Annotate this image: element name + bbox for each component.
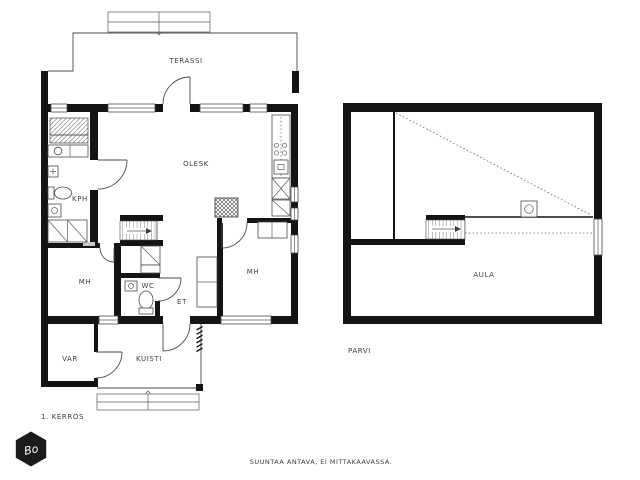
staircase bbox=[120, 221, 160, 273]
terrace-outline bbox=[48, 33, 297, 71]
bathroom-fixtures bbox=[48, 118, 88, 242]
threshold bbox=[83, 242, 95, 246]
window bbox=[51, 104, 67, 112]
et-wardrobe bbox=[197, 257, 217, 307]
window bbox=[594, 219, 602, 255]
room-label-terassi: TERASSI bbox=[168, 57, 202, 65]
kitchen bbox=[272, 115, 290, 216]
toilet-tank bbox=[139, 308, 153, 314]
toilet-tank bbox=[48, 187, 54, 199]
room-label-et: ET bbox=[177, 298, 187, 306]
room-label-mh-right: MH bbox=[247, 268, 260, 276]
logo: Bo bbox=[16, 432, 46, 467]
loft-plan: AULA PARVI bbox=[343, 103, 602, 355]
window bbox=[108, 104, 155, 112]
sink bbox=[125, 281, 137, 291]
window bbox=[200, 104, 243, 112]
walls bbox=[343, 103, 602, 324]
oven bbox=[274, 160, 288, 174]
room-label-kph: KPH bbox=[72, 195, 88, 203]
window bbox=[99, 316, 118, 324]
chimney bbox=[521, 201, 537, 217]
void-dashed-line bbox=[396, 113, 591, 215]
doors bbox=[96, 77, 247, 378]
kph-door bbox=[98, 160, 127, 189]
terrace-door bbox=[163, 77, 190, 104]
porch-steps bbox=[97, 391, 199, 410]
room-label-olesk: OLESK bbox=[183, 160, 209, 168]
window bbox=[291, 208, 298, 220]
window bbox=[221, 316, 271, 324]
floor-label-first: 1. KERROS bbox=[41, 413, 84, 421]
toilet bbox=[55, 187, 72, 199]
mh-right-door bbox=[222, 223, 247, 248]
appliance-block bbox=[50, 118, 88, 135]
room-label-var: VAR bbox=[62, 355, 78, 363]
mh-right-wardrobe bbox=[258, 222, 287, 238]
terrace-steps bbox=[108, 12, 210, 35]
mh-left-door bbox=[100, 248, 114, 262]
inner-partition bbox=[393, 112, 395, 240]
sink bbox=[48, 204, 61, 217]
first-floor-plan: TERASSI OLESK KPH MH WC ET MH KUISTI VAR… bbox=[41, 12, 299, 421]
fireplace bbox=[215, 198, 238, 217]
porch-post bbox=[196, 384, 203, 391]
window bbox=[291, 187, 298, 202]
kuisti-door bbox=[163, 324, 190, 351]
room-label-aula: AULA bbox=[473, 271, 494, 279]
loft-staircase bbox=[426, 215, 465, 239]
railing-zigzag bbox=[197, 327, 203, 352]
floorplan-drawing: TERASSI OLESK KPH MH WC ET MH KUISTI VAR… bbox=[0, 0, 640, 480]
var-door bbox=[96, 352, 122, 378]
floor-label-loft: PARVI bbox=[348, 347, 371, 355]
toilet bbox=[139, 291, 153, 309]
window bbox=[291, 235, 298, 253]
room-label-wc: WC bbox=[141, 282, 154, 290]
window bbox=[250, 104, 267, 112]
washbasin bbox=[54, 147, 62, 155]
room-label-mh-left: MH bbox=[79, 278, 92, 286]
floorplan-page: TERASSI OLESK KPH MH WC ET MH KUISTI VAR… bbox=[0, 0, 640, 480]
room-label-kuisti: KUISTI bbox=[136, 355, 162, 363]
disclaimer-text: SUUNTAA ANTAVA, EI MITTAKAAVASSA. bbox=[250, 458, 392, 466]
